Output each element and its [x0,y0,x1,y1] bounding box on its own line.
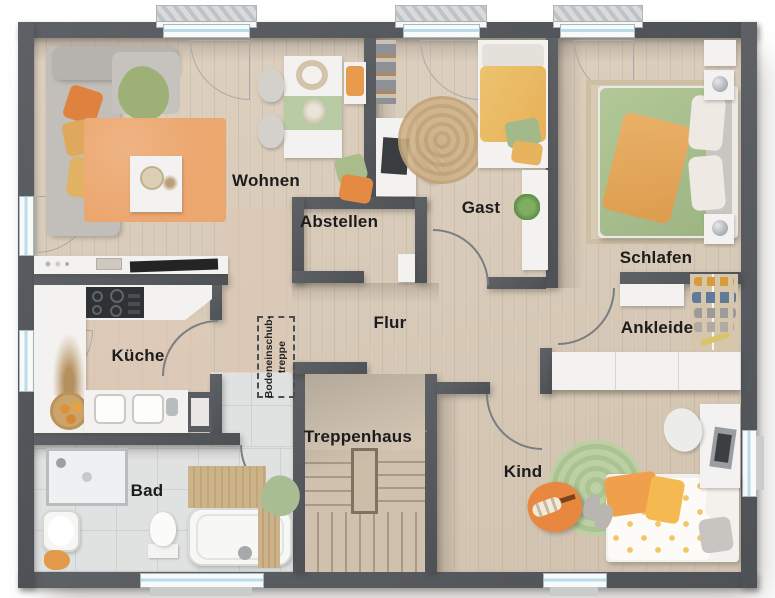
dining-chair-2 [258,114,284,148]
wardrobe [552,352,741,390]
room-label-schlafen: Schlafen [620,248,692,268]
room-label-treppenhaus: Treppenhaus [304,427,412,447]
wall-flur-kind [437,382,490,394]
room-label-kind: Kind [504,462,543,482]
stair-treads-bottom [305,512,425,572]
room-label-bad: Bad [131,481,164,501]
window-kind-bottom [543,573,607,588]
lamp-2 [712,220,728,236]
lamp-1 [712,76,728,92]
room-label-wohnen: Wohnen [232,171,300,191]
sink-basin [48,516,74,546]
wall-gast-bottom [487,277,546,289]
shoes-gray-1 [694,308,736,318]
window-bad-bottom [140,573,264,588]
bed-gast-pillow-amber [511,140,544,166]
burner-1 [92,291,103,302]
plant-gast [514,194,540,220]
bed-gast-pillow [482,44,544,68]
towel-orange [44,550,70,570]
shoes-amber [694,277,734,286]
sink-1 [94,394,126,424]
window-wohnen-left [19,196,34,256]
coffee-table-tray [140,166,164,190]
burner-2 [110,289,124,303]
chair-cushion-orange [346,66,364,96]
shelf-schlafen [704,40,736,66]
wall-ankleide-stub [540,348,552,394]
shelf-decor-books [96,258,122,270]
bed-pillow-2 [688,155,727,212]
tub-faucet [238,546,252,560]
room-label-kueche: Küche [112,346,165,366]
window-kind-right [742,430,757,497]
bookshelf [376,40,396,104]
sill-kind-bottom [550,587,598,596]
jute-rug [398,96,486,184]
shoes-gray-2 [694,322,734,332]
window-kueche-left [19,330,34,392]
room-label-abstellen: Abstellen [300,212,378,232]
dresser-gast [522,170,548,270]
window-schlafen-top [560,24,635,38]
bath-mat [188,466,266,508]
wall-treppenhaus-top [293,362,367,374]
fruit-bowl [50,392,88,430]
washing-machine-front [191,398,209,426]
sill-bad-bottom [150,587,252,596]
toilet-tank [148,544,178,558]
cabinet-abstellen [398,254,415,282]
floor-pillow-orange [338,173,374,204]
wall-abstellen-bottom [292,271,364,283]
wardrobe-seam-2 [678,352,679,390]
faucet [166,398,178,416]
shower-drain [82,472,92,482]
bed-pillow-1 [688,95,727,152]
building-outline: Bodeneinschub- treppe Wohnen Gast Abstel… [18,22,757,588]
stair-core [351,448,378,514]
wall-wohnen-kueche [34,273,228,285]
outer-wall-top [18,22,757,38]
outer-wall-right [741,22,757,588]
shelf-decor-bottles [42,257,72,271]
dining-chair-1 [258,68,284,102]
outer-wall-left [18,22,34,588]
sideboard-ankleide [620,284,684,306]
wardrobe-seam-1 [615,352,616,390]
coffee-table-plant [162,174,178,192]
room-label-flur: Flur [374,313,407,333]
table-wreath [296,60,328,90]
loft-ladder-label-line1: Bodeneinschub- [263,316,276,398]
loft-ladder-outline: Bodeneinschub- treppe [257,316,295,398]
cooktop-knobs [128,290,140,314]
loft-ladder-label-line2: treppe [276,316,289,398]
room-label-gast: Gast [462,198,501,218]
loft-ladder-label: Bodeneinschub- treppe [263,316,289,398]
window-gast-top [403,24,480,38]
burner-3 [92,305,102,315]
room-label-ankleide: Ankleide [621,318,693,338]
stair-treads-right [377,450,425,514]
pillow-kind-gray [698,516,734,554]
outer-wall-bottom [18,572,757,588]
toilet-bowl [150,512,176,546]
wall-abstellen-right [415,197,427,283]
sink-2 [132,394,164,424]
shoes-blue [692,292,736,303]
shower-head [56,458,66,468]
floor-plan: Bodeneinschub- treppe Wohnen Gast Abstel… [0,0,775,598]
sill-kind-right [756,436,764,490]
table-flowers [303,98,325,124]
wall-treppenhaus-kind [425,374,437,572]
window-wohnen-top [163,24,250,38]
dried-flowers [52,332,86,396]
burner-4 [110,305,122,317]
wall-bad-top [34,433,240,445]
